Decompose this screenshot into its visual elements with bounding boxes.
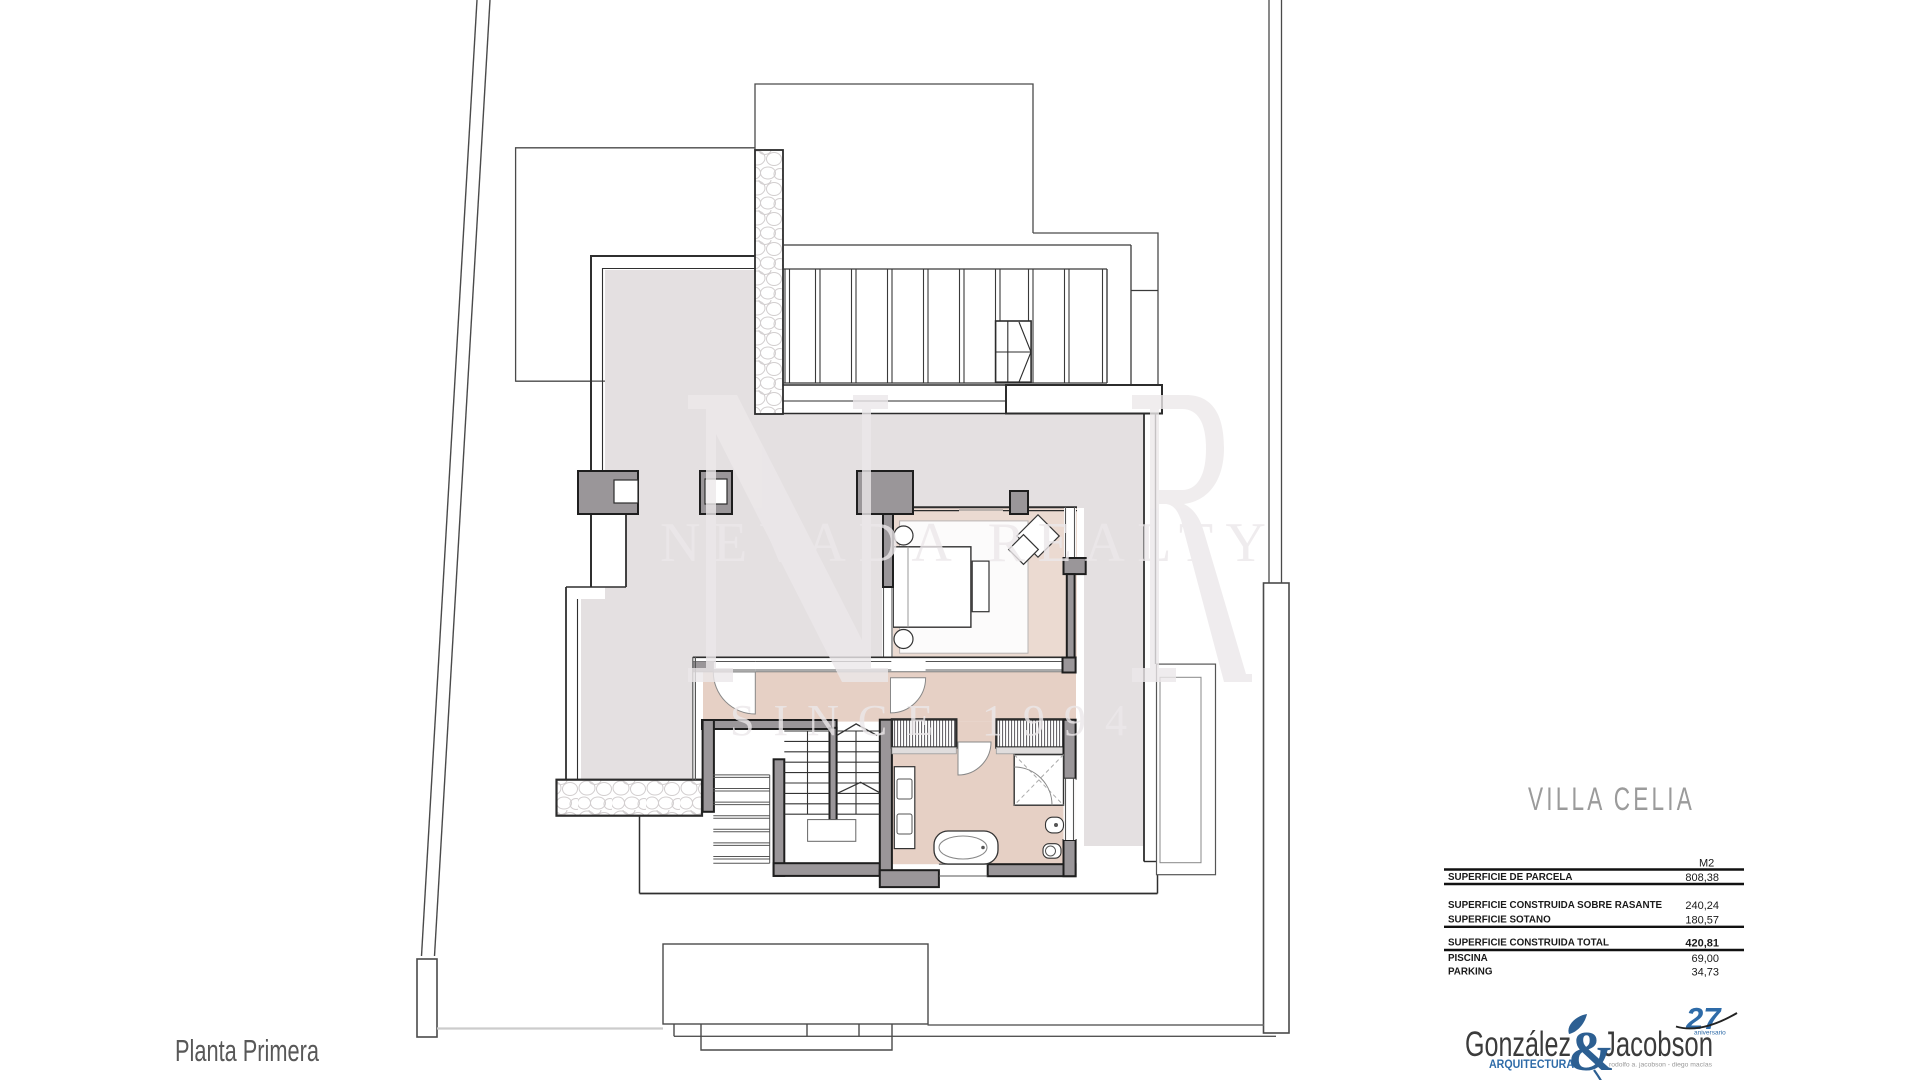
svg-text:808,38: 808,38 bbox=[1685, 872, 1719, 884]
svg-text:240,24: 240,24 bbox=[1685, 900, 1719, 912]
svg-text:69,00: 69,00 bbox=[1691, 953, 1719, 965]
svg-text:ARQUITECTURA: ARQUITECTURA bbox=[1489, 1057, 1574, 1071]
svg-text:SUPERFICIE SOTANO: SUPERFICIE SOTANO bbox=[1448, 915, 1551, 926]
svg-text:SUPERFICIE DE PARCELA: SUPERFICIE DE PARCELA bbox=[1448, 872, 1572, 883]
svg-text:Planta Primera: Planta Primera bbox=[175, 1033, 320, 1068]
svg-text:aniversario: aniversario bbox=[1694, 1030, 1726, 1037]
svg-text:420,81: 420,81 bbox=[1685, 938, 1719, 950]
svg-text:SUPERFICIE CONSTRUIDA SOBRE RA: SUPERFICIE CONSTRUIDA SOBRE RASANTE bbox=[1448, 900, 1663, 911]
svg-text:180,57: 180,57 bbox=[1685, 915, 1719, 927]
svg-text:SUPERFICIE CONSTRUIDA TOTAL: SUPERFICIE CONSTRUIDA TOTAL bbox=[1448, 938, 1609, 949]
svg-text:NEVADA REALTY: NEVADA REALTY bbox=[660, 512, 1292, 574]
svg-text:M2: M2 bbox=[1699, 858, 1714, 870]
svg-text:rodolfo a. jacobson - diego ma: rodolfo a. jacobson - diego macías bbox=[1609, 1062, 1712, 1069]
svg-text:34,73: 34,73 bbox=[1691, 967, 1719, 979]
svg-text:PARKING: PARKING bbox=[1448, 967, 1493, 978]
svg-text:SINCE 1994: SINCE 1994 bbox=[730, 696, 1152, 745]
svg-text:VILLA CELIA: VILLA CELIA bbox=[1528, 781, 1695, 817]
svg-text:PISCINA: PISCINA bbox=[1448, 953, 1488, 964]
